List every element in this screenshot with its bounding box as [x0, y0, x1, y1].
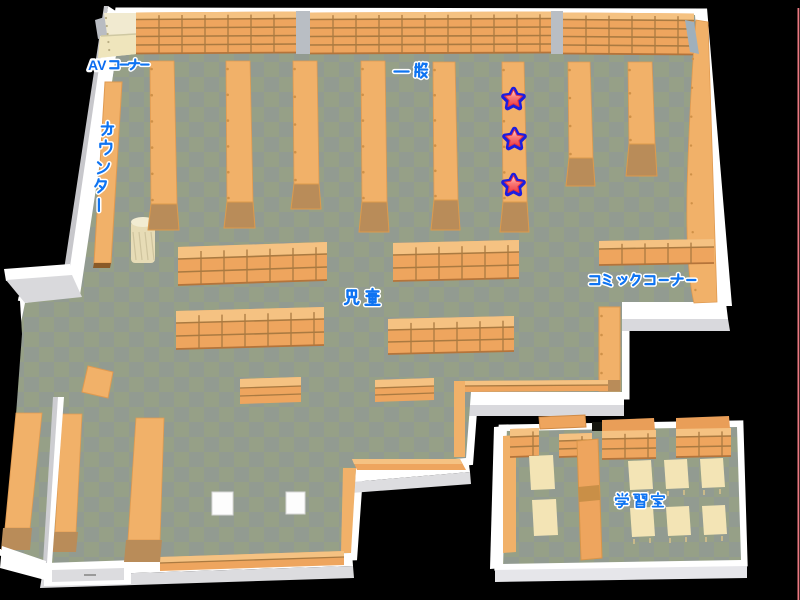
svg-text:AV: AV: [88, 57, 107, 73]
